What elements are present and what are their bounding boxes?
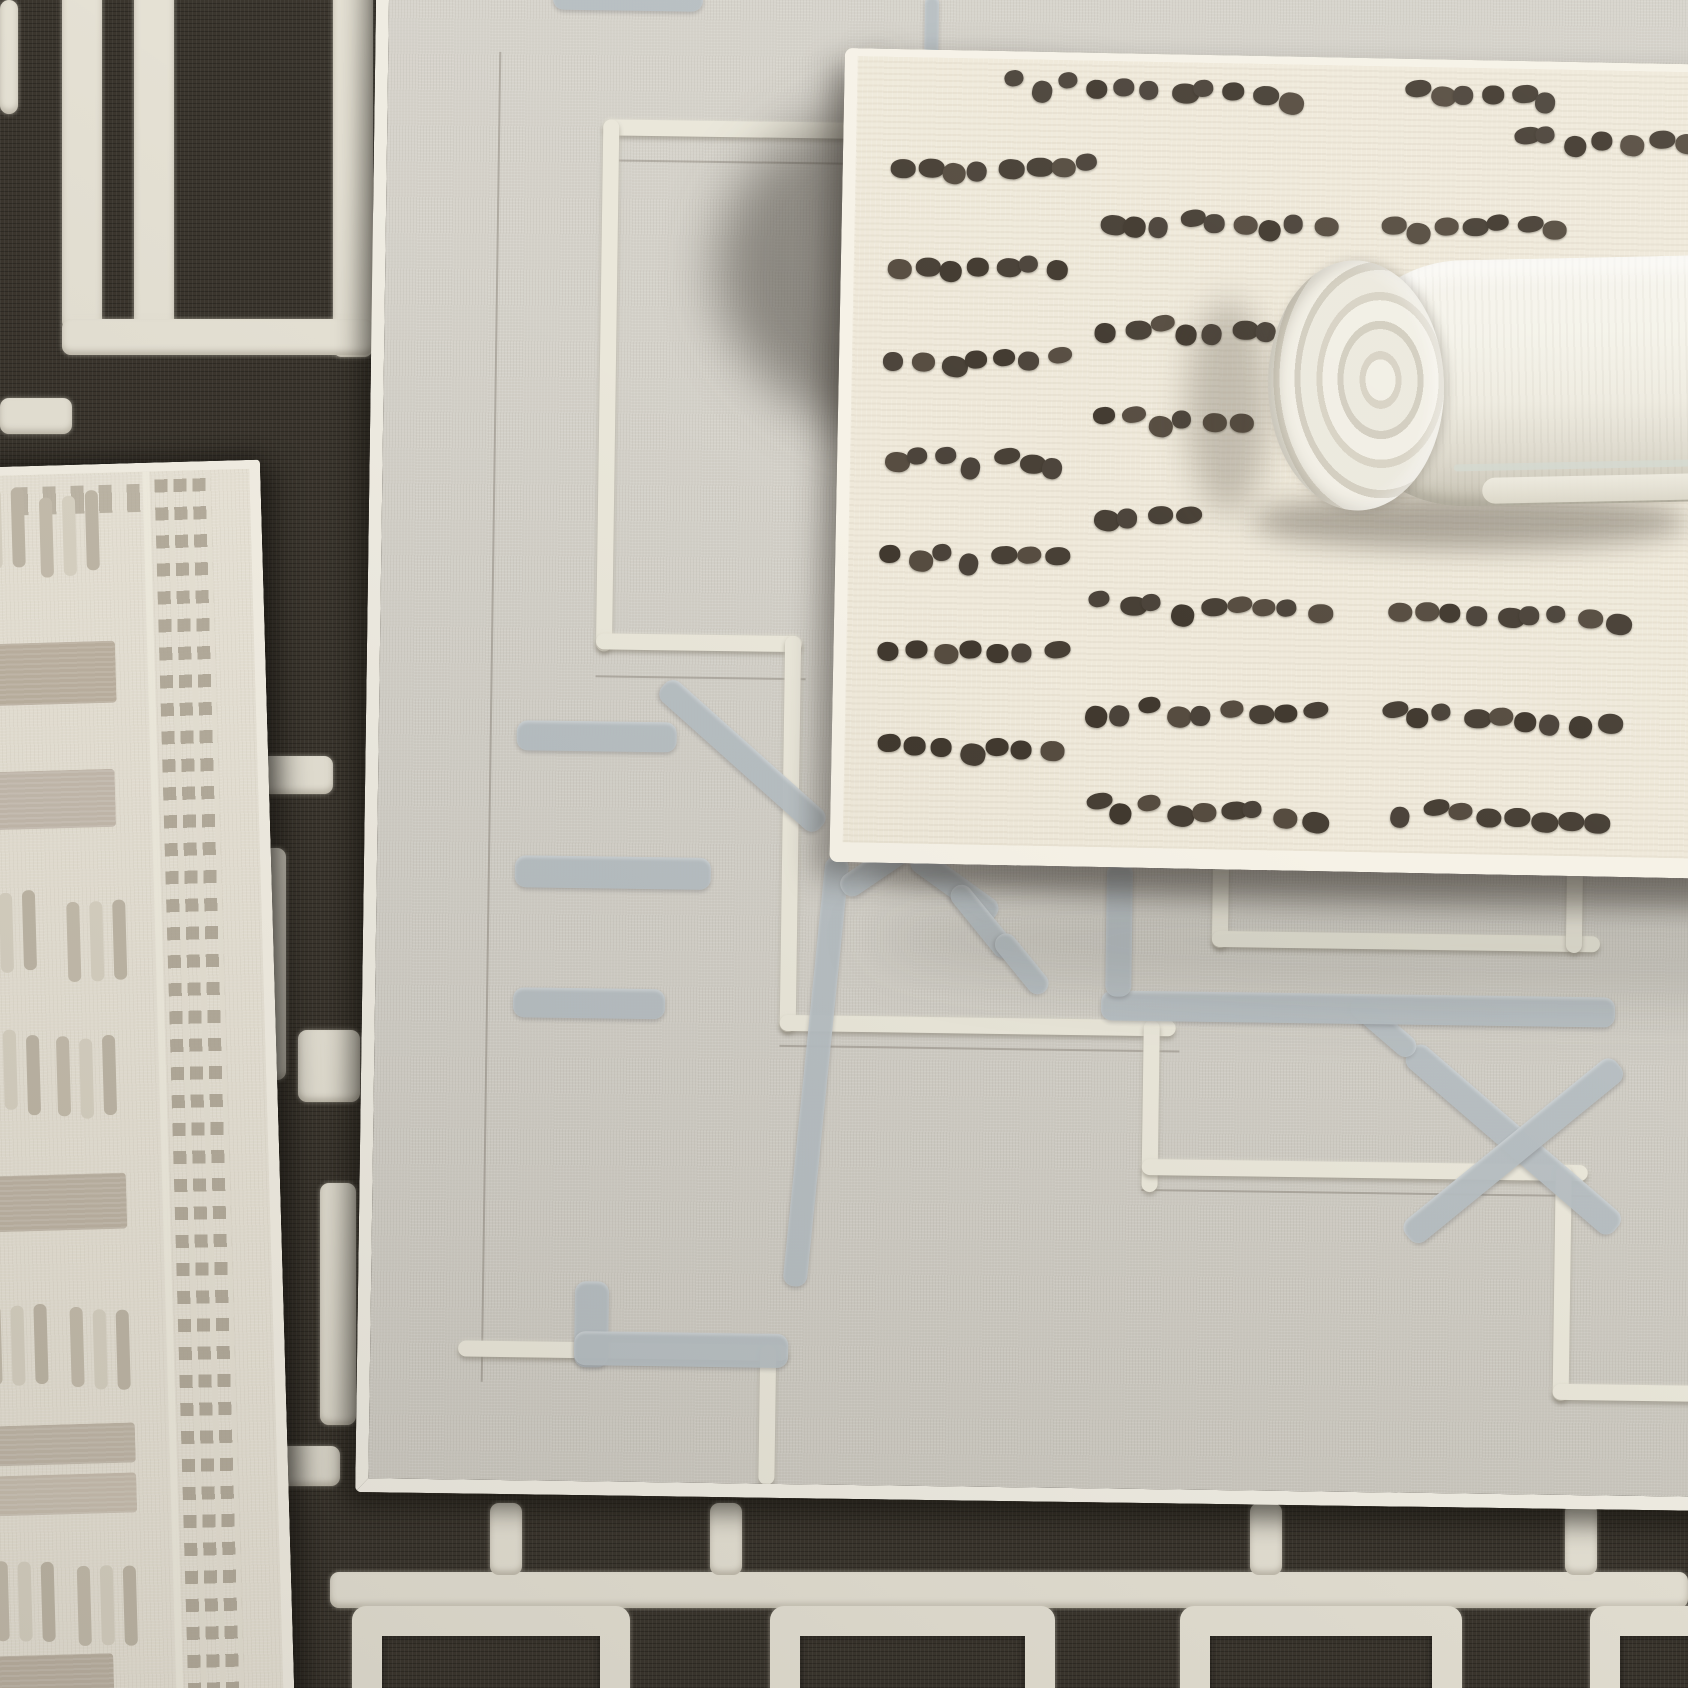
gray-rug-white-border-line bbox=[596, 119, 619, 651]
ivory-rug-dot bbox=[916, 257, 942, 277]
ivory-rug-dot bbox=[1003, 68, 1025, 87]
ivory-rug-dot bbox=[1404, 78, 1432, 98]
ivory-rug-dot bbox=[1016, 545, 1042, 565]
ivory-rug-dot bbox=[1140, 593, 1161, 612]
ivory-rug-dot bbox=[1011, 644, 1031, 663]
ivory-rug-dot bbox=[1405, 221, 1432, 246]
ivory-rug-dot bbox=[1051, 158, 1075, 178]
ivory-rug-dot bbox=[1116, 508, 1138, 529]
ivory-rug-dot bbox=[1204, 214, 1225, 233]
dark-rug-pattern-bar bbox=[1565, 1503, 1597, 1575]
dark-rug-pattern-bar bbox=[1250, 1503, 1282, 1575]
ivory-rug-dot bbox=[1057, 71, 1079, 90]
layered-rugs-photo bbox=[0, 0, 1688, 1688]
ivory-rug-dot bbox=[998, 159, 1025, 180]
gray-rug-bluegray-motif bbox=[655, 676, 830, 837]
ivory-rug-dot bbox=[993, 446, 1021, 466]
beige-rug-dash bbox=[69, 1307, 84, 1387]
gray-rug-weave-line bbox=[779, 1045, 1179, 1053]
ivory-rug-dot bbox=[991, 546, 1018, 565]
beige-rug-dash bbox=[62, 496, 77, 576]
gray-rug-weave-line bbox=[481, 52, 502, 1382]
ivory-rug-dot bbox=[1010, 740, 1032, 761]
ivory-rug-dot bbox=[934, 446, 957, 465]
ivory-rug-dot bbox=[1075, 153, 1098, 172]
ivory-rug-dot bbox=[1276, 598, 1298, 617]
ivory-rug-dot bbox=[1043, 639, 1071, 659]
beige-rug-dash bbox=[0, 893, 14, 973]
roll-outer-flap bbox=[1482, 473, 1688, 504]
ivory-rug-dot bbox=[1302, 700, 1330, 720]
ivory-rug-dot bbox=[1604, 612, 1633, 637]
ivory-rug-dot bbox=[1201, 597, 1228, 617]
gray-rug-weave-line bbox=[596, 675, 806, 680]
beige-rug-taupe-block bbox=[0, 1422, 136, 1466]
ivory-rug-dot bbox=[1598, 713, 1625, 735]
ivory-rug-dot bbox=[1113, 78, 1134, 97]
ivory-rug-dot bbox=[912, 352, 936, 372]
dark-rug-pattern-frame bbox=[1180, 1606, 1462, 1688]
ivory-rug-dot bbox=[1618, 133, 1644, 157]
gray-rug-white-border-line bbox=[1212, 931, 1600, 952]
ivory-rug-dot bbox=[1018, 254, 1039, 273]
ivory-rug-dot bbox=[1122, 215, 1146, 239]
beige-rug-dash bbox=[112, 900, 127, 980]
ivory-rug-dot bbox=[1545, 604, 1566, 623]
ivory-rug-dot bbox=[1430, 703, 1452, 722]
ivory-rug-dot bbox=[1464, 709, 1491, 729]
ivory-rug-dot bbox=[1147, 414, 1175, 440]
beige-rug-dash bbox=[89, 901, 104, 981]
ivory-rug-dot bbox=[918, 159, 944, 179]
dark-rug-pattern-bar bbox=[62, 319, 373, 355]
beige-rug-taupe-block bbox=[0, 769, 116, 831]
ivory-rug-dot bbox=[1108, 802, 1134, 827]
ivory-rug-dot bbox=[1027, 158, 1054, 177]
ivory-rug-dot bbox=[1086, 79, 1108, 99]
ivory-rug-dot bbox=[1504, 808, 1530, 827]
ivory-rug-dot bbox=[1092, 406, 1116, 426]
ivory-rug-dot bbox=[1149, 314, 1176, 334]
ivory-rug-dot bbox=[1591, 131, 1613, 151]
beige-rug-dash bbox=[0, 1305, 3, 1385]
ivory-rug-dot bbox=[1476, 808, 1502, 829]
ivory-rug-dot bbox=[1147, 216, 1169, 239]
beige-rug-dash bbox=[85, 490, 100, 570]
ivory-rug-dot bbox=[1537, 713, 1560, 738]
ivory-rug-dot bbox=[1193, 79, 1215, 98]
beige-rug-dash bbox=[116, 1310, 131, 1390]
beige-rug-dash bbox=[77, 1566, 92, 1646]
dark-rug-pattern-frame bbox=[352, 1606, 630, 1688]
dark-rug-pattern-frame bbox=[1590, 1606, 1688, 1688]
ivory-rug-dot bbox=[1674, 133, 1688, 156]
ivory-rug-dot bbox=[966, 160, 988, 183]
beige-rug-dash bbox=[66, 902, 81, 982]
ivory-rug-dot bbox=[931, 543, 952, 562]
ivory-rug-dot bbox=[1249, 705, 1275, 724]
ivory-rug-dot bbox=[965, 350, 988, 369]
ivory-rug-dot bbox=[941, 161, 968, 186]
ivory-rug-dot bbox=[1169, 602, 1196, 628]
ivory-rug-dot bbox=[1192, 803, 1217, 823]
ivory-rug-dot bbox=[1434, 218, 1459, 237]
ivory-rug-dot bbox=[1040, 457, 1063, 482]
ivory-rug-dot bbox=[1046, 259, 1069, 281]
ivory-rug-dot bbox=[967, 258, 989, 278]
ivory-rug-dot bbox=[986, 643, 1009, 663]
ivory-rug-dot bbox=[878, 642, 900, 662]
dark-rug-pattern-bar bbox=[298, 1030, 360, 1102]
ivory-rug-dot bbox=[939, 260, 965, 284]
ivory-rug-dot bbox=[1283, 215, 1302, 234]
dark-rug-pattern-bar bbox=[320, 1183, 356, 1425]
ivory-rug-dot bbox=[1388, 602, 1413, 622]
beige-rug-dash bbox=[93, 1309, 108, 1389]
ivory-rug-dot bbox=[1252, 598, 1277, 618]
ivory-rug-dot bbox=[958, 741, 987, 767]
ivory-rug-dot bbox=[930, 737, 951, 756]
beige-rug-dash bbox=[26, 1035, 41, 1115]
gray-rug-bluegray-motif bbox=[515, 855, 711, 890]
ivory-rug-dot bbox=[1513, 711, 1536, 733]
beige-rug-taupe-block bbox=[0, 641, 117, 707]
ivory-rug-dot bbox=[1453, 85, 1473, 105]
ivory-rug-dot bbox=[985, 737, 1008, 756]
ivory-rug-dot bbox=[1557, 811, 1584, 832]
ivory-rug-dot bbox=[882, 352, 903, 372]
ivory-rug-dot bbox=[1440, 603, 1461, 622]
ivory-rug-dot bbox=[1257, 218, 1282, 243]
beige-rug-dash bbox=[33, 1304, 48, 1384]
beige-rug-dash bbox=[39, 497, 54, 577]
ivory-rug-dot bbox=[887, 258, 912, 280]
ivory-rug-dot bbox=[1222, 82, 1245, 101]
ivory-rug-dot bbox=[1166, 804, 1196, 830]
ivory-rug-dot bbox=[890, 159, 915, 178]
ivory-rug-dot bbox=[1308, 604, 1333, 623]
beige-rug-dash bbox=[3, 1030, 18, 1110]
gray-rug-bluegray-motif bbox=[1105, 862, 1133, 996]
dark-rug-pattern-bar bbox=[490, 1503, 522, 1575]
ivory-rug-dot bbox=[1226, 595, 1253, 615]
ivory-rug-dot bbox=[1301, 810, 1332, 836]
ivory-rug-dot bbox=[1486, 213, 1511, 233]
gray-rug-bluegray-motif bbox=[513, 987, 665, 1019]
ivory-rug-dot bbox=[905, 640, 928, 659]
dark-rug-pattern-bar bbox=[62, 0, 102, 330]
ivory-rug-dot bbox=[992, 348, 1016, 367]
ivory-rug-dot bbox=[1466, 605, 1488, 626]
dark-rug-pattern-bar bbox=[0, 0, 18, 114]
gray-rug-white-border-line bbox=[780, 636, 802, 1032]
ivory-rug-dot bbox=[1463, 218, 1489, 237]
beige-runner-rug bbox=[0, 460, 296, 1688]
ivory-rug-dot bbox=[1137, 794, 1163, 814]
ivory-rug-dot bbox=[1530, 811, 1559, 834]
beige-rug-dash bbox=[123, 1565, 138, 1645]
ivory-rug-dot bbox=[1584, 813, 1611, 834]
gray-rug-white-border-line bbox=[1553, 1384, 1688, 1403]
ivory-rug-dot bbox=[1542, 221, 1566, 241]
ivory-rug-dot bbox=[1120, 405, 1146, 425]
ivory-rug-dot bbox=[1567, 714, 1594, 740]
beige-rug-dash bbox=[41, 1562, 56, 1642]
ivory-rug-dot bbox=[1406, 708, 1429, 729]
ivory-rug-dot bbox=[1415, 602, 1439, 621]
gray-rug-bluegray-motif bbox=[990, 929, 1053, 999]
ivory-rug-dot bbox=[1314, 216, 1339, 237]
ivory-rug-dot bbox=[906, 446, 927, 465]
ivory-rug-dot bbox=[1649, 130, 1676, 149]
ivory-rug-dot bbox=[957, 551, 980, 576]
ivory-rug-dot bbox=[1125, 320, 1151, 339]
ivory-rug-dot bbox=[1189, 705, 1210, 727]
ivory-rug-dot bbox=[1047, 345, 1073, 365]
beige-rug-dash bbox=[18, 1561, 33, 1641]
gray-rug-bluegray-motif bbox=[553, 0, 703, 12]
ivory-rug-dot bbox=[1519, 606, 1539, 625]
ivory-rug-dot bbox=[1489, 708, 1514, 727]
beige-rug-dash bbox=[79, 1038, 94, 1118]
ivory-rug-dot bbox=[1087, 589, 1110, 609]
ivory-rug-dot bbox=[1018, 352, 1039, 372]
ivory-rug-dot bbox=[1147, 506, 1173, 525]
ivory-rug-dot bbox=[959, 640, 982, 659]
ivory-rug-dot bbox=[1483, 86, 1505, 105]
ivory-rug-dot bbox=[1578, 609, 1603, 629]
ivory-rug-dot bbox=[1040, 740, 1065, 761]
beige-rug-taupe-block bbox=[0, 1653, 114, 1688]
gray-rug-bluegray-motif bbox=[574, 1331, 788, 1368]
ivory-rug-dot bbox=[1233, 215, 1258, 236]
ivory-rug-dot bbox=[1381, 216, 1407, 235]
beige-rug-dash bbox=[22, 890, 37, 970]
ivory-rug-dot bbox=[1422, 797, 1451, 818]
ivory-rug-dot bbox=[1277, 90, 1306, 117]
ivory-rug-dot bbox=[1448, 802, 1474, 822]
ivory-rug-dot bbox=[1179, 208, 1206, 228]
ivory-rug-dot bbox=[958, 455, 981, 480]
dark-rug-pattern-bar bbox=[134, 0, 174, 330]
ivory-rug-dot bbox=[1563, 134, 1589, 159]
ivory-rug-dot bbox=[1139, 81, 1158, 100]
ivory-rug-dot bbox=[1272, 807, 1298, 830]
gray-rug-bluegray-motif bbox=[1101, 990, 1615, 1027]
ivory-rug-dot bbox=[1030, 79, 1054, 104]
ivory-rug-dot bbox=[1165, 705, 1192, 730]
ivory-rug-dot bbox=[903, 736, 925, 755]
beige-rug-taupe-block bbox=[0, 1472, 137, 1516]
beige-rug-dash bbox=[11, 487, 26, 567]
dark-rug-pattern-bar bbox=[333, 0, 373, 357]
beige-rug-dash bbox=[102, 1035, 117, 1115]
dark-rug-pattern-bar bbox=[330, 1572, 1688, 1608]
beige-rug-dash bbox=[100, 1565, 115, 1645]
ivory-rug-dot bbox=[1381, 699, 1409, 719]
ivory-rug-dot bbox=[877, 733, 901, 752]
gray-rug-weave-line bbox=[1141, 1189, 1591, 1197]
gray-rug-white-border-line bbox=[1566, 869, 1583, 953]
ivory-rug-dot bbox=[908, 549, 934, 573]
ivory-rug-dot bbox=[1534, 125, 1555, 144]
gray-rug-bluegray-motif bbox=[924, 0, 939, 56]
rolled-white-rug bbox=[1237, 243, 1688, 525]
ivory-rug-dot bbox=[879, 544, 901, 563]
beige-rug-dash bbox=[0, 1561, 10, 1641]
ivory-rug-dot bbox=[1389, 806, 1411, 829]
dark-rug-pattern-bar bbox=[0, 398, 72, 434]
beige-rug-dash bbox=[0, 489, 3, 569]
beige-rug-dash bbox=[56, 1036, 71, 1116]
ivory-rug-dot bbox=[1253, 86, 1280, 106]
dark-rug-pattern-frame bbox=[770, 1606, 1055, 1688]
beige-rug-taupe-block bbox=[0, 1173, 127, 1233]
beige-rug-dash bbox=[10, 1306, 25, 1386]
ivory-rug-dot bbox=[1175, 505, 1203, 525]
beige-rug-motifs-mount bbox=[0, 469, 285, 1688]
ivory-rug-dot bbox=[934, 644, 960, 666]
ivory-rug-dot bbox=[1093, 322, 1116, 344]
ivory-rug-dot bbox=[1517, 214, 1546, 234]
ivory-rug-dot bbox=[1137, 695, 1162, 715]
dark-rug-pattern-bar bbox=[710, 1503, 742, 1575]
gray-rug-white-border-line bbox=[596, 633, 802, 652]
gray-rug-bluegray-motif bbox=[517, 720, 677, 752]
ivory-rug-dot bbox=[1220, 699, 1246, 719]
ivory-rug-dot bbox=[1108, 704, 1131, 728]
ivory-rug-dot bbox=[1083, 704, 1109, 730]
ivory-rug-dot bbox=[1045, 547, 1071, 566]
ivory-rug-dot bbox=[1274, 704, 1297, 723]
